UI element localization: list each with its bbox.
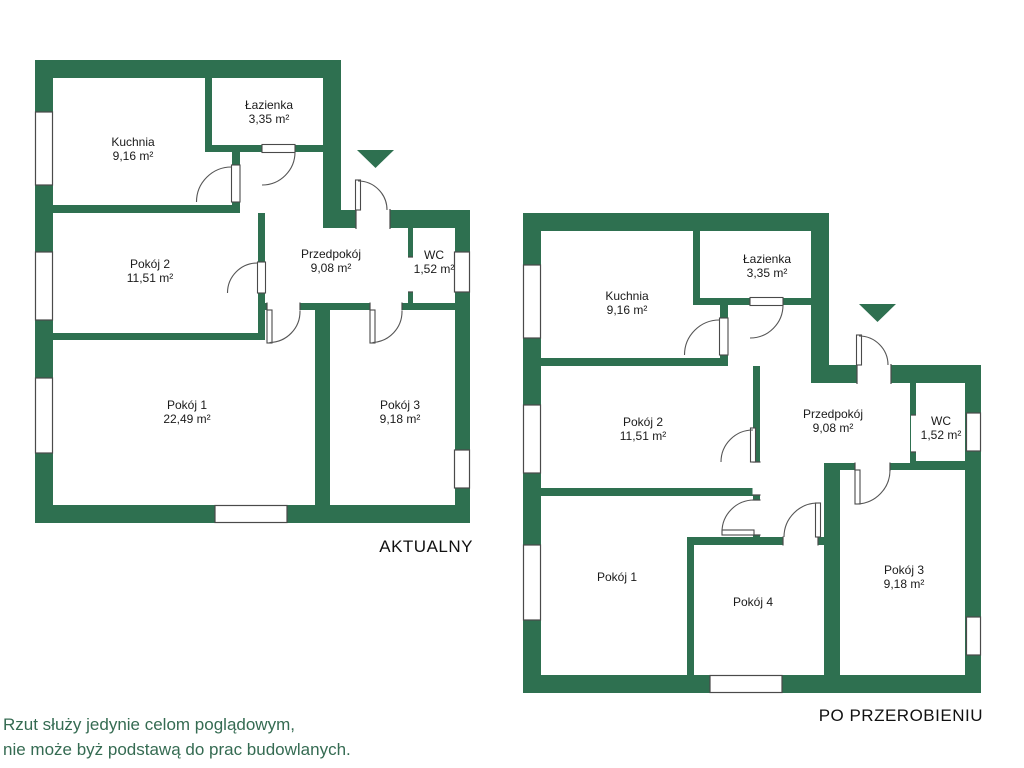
window [524,405,541,473]
room-label-pokoj3-after: Pokój 3 9,18 m² [884,563,925,591]
door-leaf [232,165,241,202]
door-leaf [750,298,783,306]
door-leaf [258,262,266,293]
room-area: 9,08 m² [813,421,854,435]
door-leaf [855,470,860,504]
window [455,252,470,292]
door-leaf [262,145,295,153]
room-name: Pokój 3 [380,398,420,412]
window [524,545,541,620]
room-area: 11,51 m² [620,429,666,443]
window [36,112,53,185]
window [36,378,53,453]
room-label-pokoj2-after: Pokój 2 11,51 m² [620,415,666,443]
door-arc [358,181,387,210]
door-opening [911,415,916,452]
room-area: 3,35 m² [747,266,788,280]
room-name: Kuchnia [111,135,154,149]
plan-title-current: AKTUALNY [379,537,473,557]
room-area: 22,49 m² [163,412,210,426]
entrance-marker-triangle [357,150,394,168]
door-opening [267,303,300,311]
window [967,413,981,451]
room-name: Pokój 2 [623,415,663,429]
room-name: WC [931,414,951,428]
room-name: Pokój 1 [597,570,637,584]
room-pokoj4 [694,545,824,675]
room-name: Łazienka [743,252,791,266]
room-label-wc-after: WC 1,52 m² [921,414,962,442]
room-label-pokoj4-after: Pokój 4 [733,595,773,609]
window [710,676,782,693]
room-name: Przedpokój [803,407,863,421]
disclaimer-note: Rzut służy jedynie celom poglądowym, nie… [3,712,351,762]
door-leaf [720,318,729,355]
room-label-kuchnia-after: Kuchnia 9,16 m² [605,289,648,317]
room-label-pokoj1-after: Pokój 1 [597,570,637,584]
door-leaf [356,180,361,210]
door-leaf [267,310,272,343]
room-area: 9,18 m² [380,412,421,426]
room-area: 9,08 m² [311,261,352,275]
room-name: Pokój 2 [130,257,170,271]
room-label-kuchnia-current: Kuchnia 9,16 m² [111,135,154,163]
room-name: Kuchnia [605,289,648,303]
room-label-pokoj1-current: Pokój 1 22,49 m² [163,398,210,426]
door-opening [783,537,818,546]
room-area: 1,52 m² [921,428,962,442]
floor-plan-after [523,213,981,693]
door-opening [370,303,402,311]
room-name: WC [424,248,444,262]
window [36,252,53,320]
room-label-wc-current: WC 1,52 m² [414,248,455,276]
room-name: Pokój 3 [884,563,924,577]
window [524,265,541,338]
room-label-lazienka-after: Łazienka 3,35 m² [743,252,791,280]
entrance-marker-triangle [859,304,896,322]
window [455,450,470,488]
room-name: Pokój 4 [733,595,773,609]
room-label-lazienka-current: Łazienka 3,35 m² [245,98,293,126]
room-area: 9,16 m² [607,303,648,317]
door-leaf [816,503,821,537]
room-area: 1,52 m² [414,262,455,276]
room-area: 3,35 m² [249,112,290,126]
door-leaf [857,335,862,365]
window [967,617,981,655]
door-opening [356,209,390,229]
disclaimer-line-2: nie może byż podstawą do prac budowlanyc… [3,737,351,762]
plan-title-after: PO PRZEROBIENIU [819,706,983,726]
floor-plan-current [35,60,470,523]
door-opening [408,257,413,292]
door-leaf [751,428,756,462]
room-label-pokoj2-current: Pokój 2 11,51 m² [127,257,173,285]
door-opening [753,462,761,495]
room-label-przedpokoj-current: Przedpokój 9,08 m² [301,247,361,275]
door-opening [857,364,891,384]
room-area: 9,18 m² [884,577,925,591]
window [215,506,287,523]
room-area: 11,51 m² [127,271,173,285]
room-area: 9,16 m² [113,149,154,163]
room-name: Łazienka [245,98,293,112]
floor-plans-canvas [0,0,1024,768]
door-leaf [722,530,754,535]
door-leaf [370,310,375,343]
disclaimer-line-1: Rzut służy jedynie celom poglądowym, [3,712,351,737]
room-name: Pokój 1 [167,398,207,412]
room-name: Przedpokój [301,247,361,261]
door-arc [859,336,888,365]
room-label-przedpokoj-after: Przedpokój 9,08 m² [803,407,863,435]
room-label-pokoj3-current: Pokój 3 9,18 m² [380,398,421,426]
